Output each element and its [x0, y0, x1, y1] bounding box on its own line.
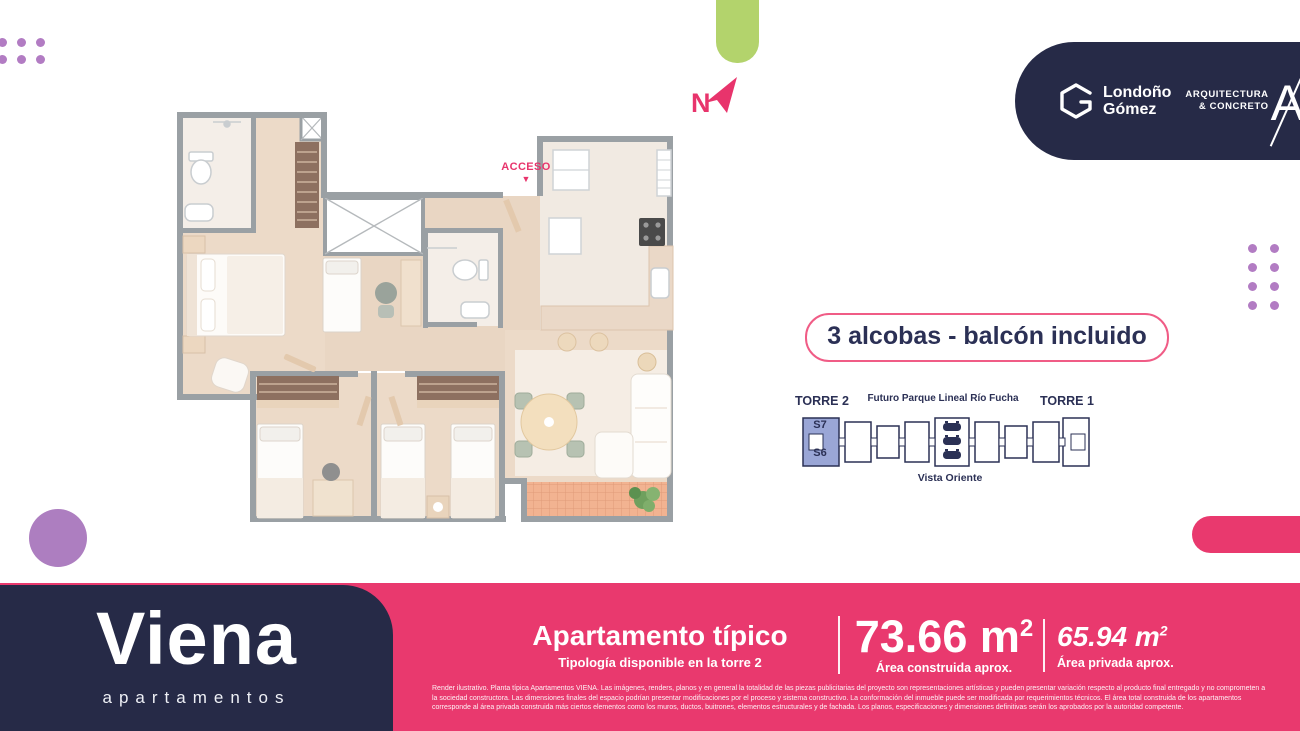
green-accent-tab: [716, 0, 759, 63]
park-label: Futuro Parque Lineal Río Fucha: [843, 393, 1043, 404]
divider: [838, 616, 840, 674]
vista-oriente-label: Vista Oriente: [850, 472, 1050, 484]
area-built-value: 73.66 m2: [846, 614, 1042, 659]
cube-icon: [1057, 81, 1095, 121]
londono-gomez-logo: Londoño Gómez: [1057, 81, 1171, 121]
car-icons: [943, 421, 961, 459]
area-private-caption: Área privada aprox.: [1057, 656, 1227, 670]
tower-site-diagram: [795, 412, 1095, 472]
dot-grid-right: [1248, 244, 1279, 310]
unit-s7-label: S7: [800, 419, 840, 431]
rooms-badge: 3 alcobas - balcón incluido: [805, 313, 1169, 362]
area-built-caption: Área construida aprox.: [846, 661, 1042, 675]
access-arrow-icon: ▼: [496, 174, 556, 184]
apartment-type-block: Apartamento típico Tipología disponible …: [490, 620, 830, 670]
area-private-value: 65.94 m2: [1057, 623, 1227, 651]
brand-logo-panel: Londoño Gómez ARQUITECTURA & CONCRETO A: [1015, 42, 1300, 160]
apartment-subtitle: Tipología disponible en la torre 2: [490, 655, 830, 670]
developer-name: Londoño Gómez: [1103, 84, 1171, 119]
project-tagline: apartamentos: [0, 688, 393, 708]
dot-grid-left: [0, 38, 45, 64]
divider: [1043, 619, 1045, 672]
unit-s6-label: S6: [800, 447, 840, 459]
access-label: ACCESO: [496, 161, 556, 173]
area-private-block: 65.94 m2 Área privada aprox.: [1057, 623, 1227, 670]
project-name: Viena: [0, 596, 393, 681]
purple-accent-circle: [29, 509, 87, 567]
area-built-block: 73.66 m2 Área construida aprox.: [846, 614, 1042, 675]
tower-2-label: TORRE 2: [795, 394, 849, 408]
apartment-title: Apartamento típico: [490, 620, 830, 652]
architect-name: ARQUITECTURA & CONCRETO: [1185, 89, 1268, 113]
floor-plan: [165, 108, 695, 568]
legal-disclaimer: Render ilustrativo. Planta típica Aparta…: [432, 684, 1270, 713]
dining-area: [515, 393, 584, 457]
north-arrow-icon: [705, 77, 739, 115]
arquitectura-concreto-logo: ARQUITECTURA & CONCRETO A: [1185, 76, 1300, 126]
pink-accent-tab: [1192, 516, 1300, 553]
tower-1-label: TORRE 1: [1040, 394, 1094, 408]
